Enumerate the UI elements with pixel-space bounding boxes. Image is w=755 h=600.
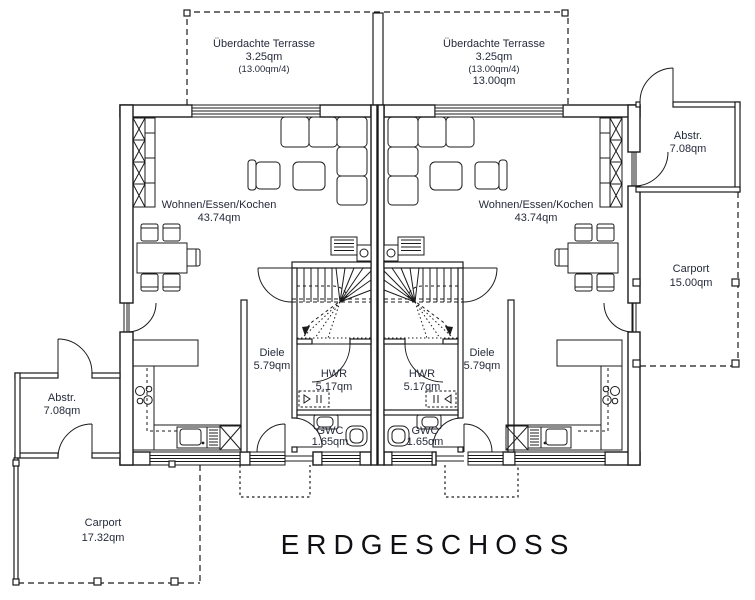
room-name: Carport <box>670 262 713 276</box>
room-total: 13.00qm <box>443 75 545 88</box>
room-area: 5.79qm <box>464 360 501 373</box>
room-name: HWR <box>316 368 353 381</box>
label-carport-left: Carport 17.32qm <box>82 516 125 546</box>
label-gwc-left: GWC 1.65qm <box>312 426 349 448</box>
label-diele-right: Diele 5.79qm <box>464 347 501 373</box>
label-terrace-right: Überdachte Terrasse 3.25qm (13.00qm/4) 1… <box>443 38 545 88</box>
room-area: 43.74qm <box>162 212 277 225</box>
room-area: 3.25qm <box>213 51 315 64</box>
room-name: Diele <box>464 347 501 360</box>
room-area: 3.25qm <box>443 51 545 64</box>
label-carport-right: Carport 15.00qm <box>670 262 713 290</box>
room-area: 1.65qm <box>407 437 444 448</box>
room-area: 1.65qm <box>312 437 349 448</box>
room-name: HWR <box>404 368 441 381</box>
label-hwr-right: HWR 5.17qm <box>404 368 441 394</box>
room-name: Abstr. <box>670 130 707 143</box>
room-name: Wohnen/Essen/Kochen <box>479 199 594 212</box>
sofa-right <box>388 117 507 205</box>
room-note: (13.00qm/4) <box>443 64 545 75</box>
dining-right <box>555 224 618 291</box>
dining-left <box>137 224 200 291</box>
label-abstr-right: Abstr. 7.08qm <box>670 130 707 156</box>
room-area: 5.79qm <box>254 360 291 373</box>
floor-title: ERDGESCHOSS <box>281 529 576 561</box>
label-living-left: Wohnen/Essen/Kochen 43.74qm <box>162 199 277 225</box>
room-area: 5.17qm <box>316 381 353 394</box>
stairs-right <box>384 268 463 338</box>
room-name: Abstr. <box>44 392 81 405</box>
floorplan-drawing <box>0 0 755 600</box>
room-area: 5.17qm <box>404 381 441 394</box>
label-gwc-right: GWC 1.65qm <box>407 426 444 448</box>
sofa-left <box>248 117 367 205</box>
label-terrace-left: Überdachte Terrasse 3.25qm (13.00qm/4) <box>213 38 315 75</box>
room-area: 17.32qm <box>82 531 125 546</box>
room-area: 7.08qm <box>670 143 707 156</box>
wardrobe-right <box>600 118 622 207</box>
room-area: 15.00qm <box>670 276 713 290</box>
label-diele-left: Diele 5.79qm <box>254 347 291 373</box>
entrance-canopies <box>240 465 518 497</box>
room-name: Diele <box>254 347 291 360</box>
room-name: Überdachte Terrasse <box>213 38 315 51</box>
stairs-left <box>292 268 371 338</box>
room-name: Carport <box>82 516 125 531</box>
kitchen-right <box>506 340 622 450</box>
party-wall-stub <box>373 13 383 105</box>
label-abstr-left: Abstr. 7.08qm <box>44 392 81 418</box>
floorplan-page: Überdachte Terrasse 3.25qm (13.00qm/4) Ü… <box>0 0 755 600</box>
room-note: (13.00qm/4) <box>213 64 315 75</box>
wardrobe-left <box>133 118 155 207</box>
label-living-right: Wohnen/Essen/Kochen 43.74qm <box>479 199 594 225</box>
room-name: Wohnen/Essen/Kochen <box>162 199 277 212</box>
label-hwr-left: HWR 5.17qm <box>316 368 353 394</box>
kitchen-left <box>133 340 241 450</box>
room-area: 43.74qm <box>479 212 594 225</box>
room-area: 7.08qm <box>44 405 81 418</box>
outer-walls <box>120 105 640 465</box>
room-name: Überdachte Terrasse <box>443 38 545 51</box>
